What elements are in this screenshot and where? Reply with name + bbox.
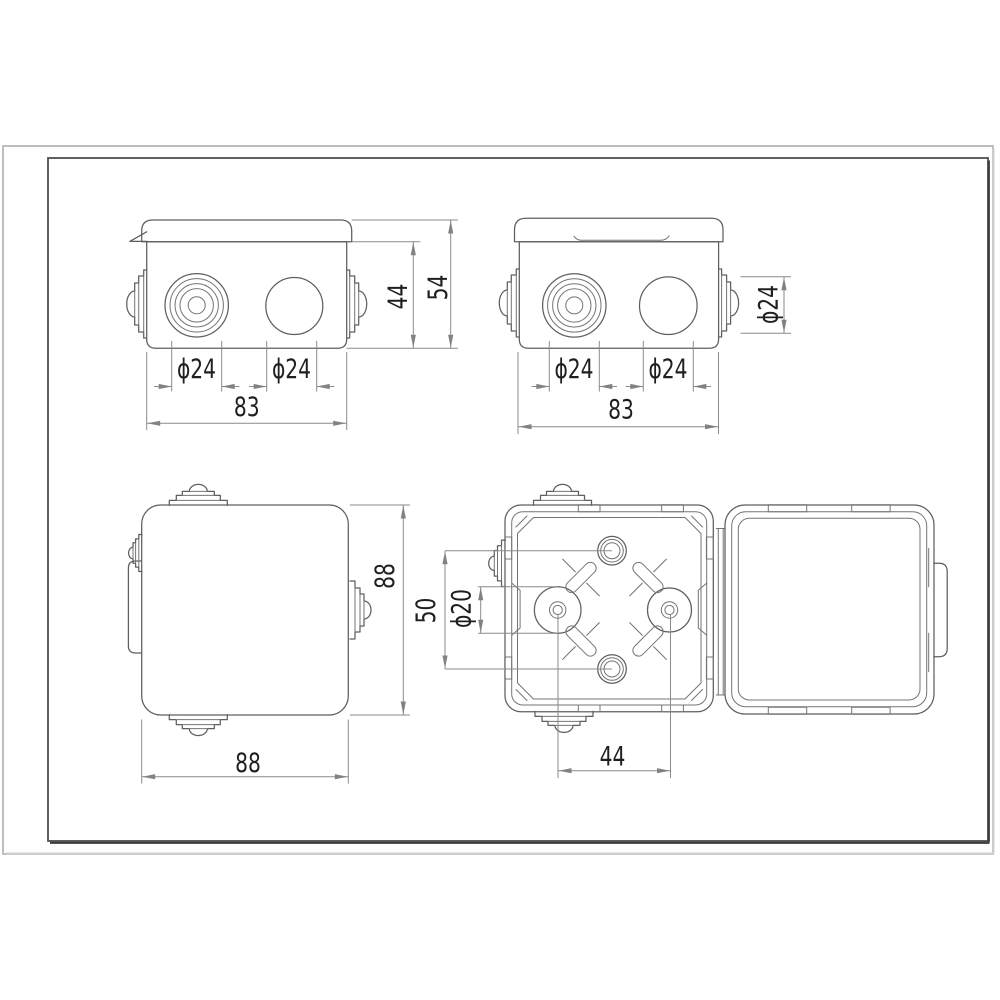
dim-label-hole1: ϕ24: [177, 353, 216, 385]
left-grommet: [499, 269, 519, 337]
view-front-right: ϕ24 ϕ24 83 ϕ24: [499, 218, 791, 434]
dim-label-boss-dia-20: ϕ20: [446, 589, 478, 628]
rim-tabs: [505, 505, 714, 712]
grommet-knockout: [543, 274, 606, 337]
dimensions-front-left: ϕ24 ϕ24 83 44 54: [147, 220, 458, 430]
lid-outline: [142, 220, 352, 242]
lid-side-lip: [128, 561, 141, 653]
box-outer-wall: [505, 505, 713, 712]
plain-knockout: [640, 277, 698, 335]
dimensions-front-right: ϕ24 ϕ24 83 ϕ24: [518, 277, 791, 434]
lid-groove: [574, 236, 669, 240]
bottom-grommet: [169, 715, 227, 736]
dimensions-open-box: 50 ϕ20 44: [410, 551, 670, 778]
lid-lip: [130, 232, 147, 242]
body-outline: [147, 242, 347, 349]
outer-border: [3, 146, 993, 854]
dim-label-spacing-50: 50: [410, 598, 442, 624]
left-grommet: [489, 540, 506, 586]
dim-label-width-83: 83: [608, 394, 634, 426]
view-open-box: 50 ϕ20 44: [410, 484, 947, 778]
dim-label-hole1: ϕ24: [554, 353, 593, 385]
view-top-closed: 88 88: [128, 484, 410, 783]
left-grommet: [127, 270, 147, 338]
dim-label-spacing-44: 44: [600, 741, 626, 773]
dim-label-body-height-44: 44: [382, 284, 414, 310]
right-grommet: [347, 270, 367, 338]
junction-box-drawing: ϕ24 ϕ24 83 44 54: [0, 0, 1000, 1000]
bottom-grommet: [535, 711, 593, 732]
plain-knockout: [266, 278, 323, 335]
view-front-left: ϕ24 ϕ24 83 44 54: [127, 220, 458, 430]
dim-label-width-83: 83: [234, 391, 260, 423]
right-grommet: [350, 581, 371, 639]
dim-label-total-height-54: 54: [422, 275, 454, 301]
open-lid: [725, 505, 947, 714]
dimensions-top-closed: 88 88: [142, 505, 410, 784]
technical-drawing-page: ϕ24 ϕ24 83 44 54: [0, 0, 1000, 1000]
grommet-knockout: [165, 274, 228, 337]
cable-clamp-tl: [549, 546, 613, 610]
cable-clamp-bl: [549, 609, 613, 673]
body-outline: [142, 505, 349, 715]
outer-border-shadow: [6, 149, 994, 854]
dim-label-grommet-dia: ϕ24: [753, 285, 785, 324]
top-grommet: [169, 484, 227, 505]
dim-label-width-88: 88: [235, 747, 261, 779]
mounting-boss-right: [648, 588, 692, 632]
right-grommet: [719, 269, 739, 337]
dim-label-hole2: ϕ24: [648, 353, 687, 385]
left-grommet: [129, 534, 142, 571]
lid-outline: [515, 218, 724, 241]
top-grommet: [534, 484, 592, 505]
dim-label-height-88: 88: [369, 563, 401, 589]
dim-label-hole2: ϕ24: [272, 353, 311, 385]
hinge: [716, 529, 725, 696]
drawing-frame: [48, 158, 988, 841]
lid-latch: [934, 563, 947, 656]
